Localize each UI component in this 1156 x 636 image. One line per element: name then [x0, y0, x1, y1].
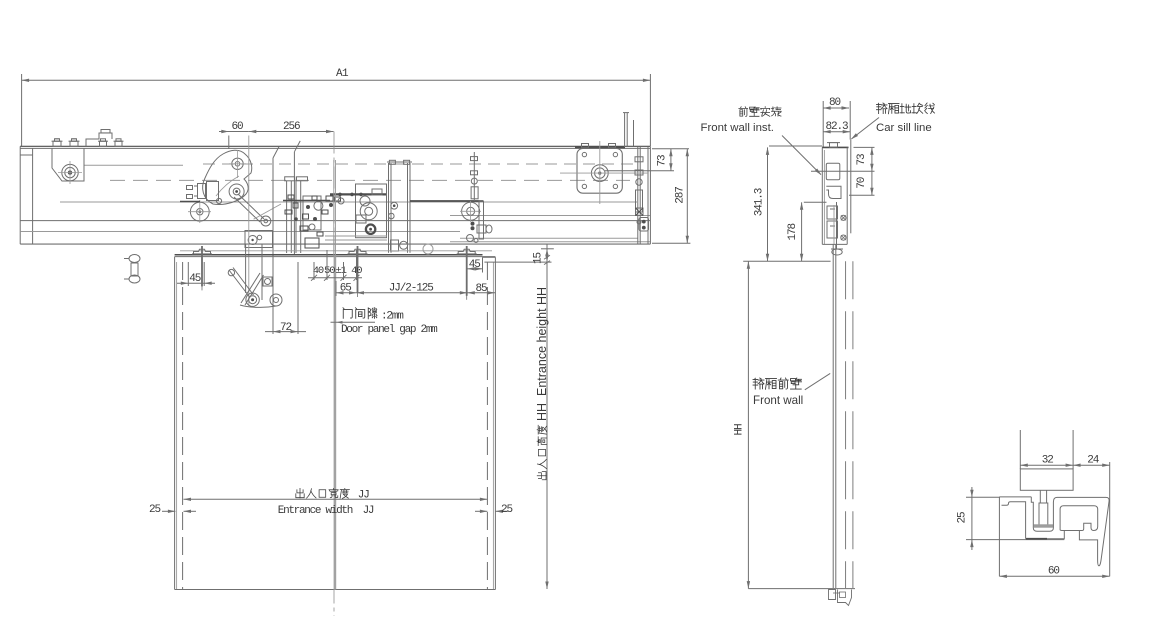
svg-text:A1: A1: [336, 68, 349, 80]
svg-text:72: 72: [280, 322, 292, 334]
svg-text:Entrance width JJ: Entrance width JJ: [278, 505, 374, 517]
svg-text:85: 85: [475, 283, 487, 295]
svg-text:70: 70: [856, 177, 868, 189]
svg-text:45: 45: [469, 259, 481, 271]
svg-text:JJ: JJ: [358, 490, 370, 502]
svg-text:32: 32: [1042, 455, 1054, 467]
svg-text:Car sill line: Car sill line: [876, 122, 932, 134]
svg-text:25: 25: [501, 504, 513, 516]
svg-text:Door panel gap 2mm: Door panel gap 2mm: [341, 324, 438, 336]
svg-text:73: 73: [856, 154, 868, 166]
svg-text:341.3: 341.3: [753, 188, 765, 216]
svg-text:25: 25: [149, 504, 161, 516]
svg-text:82.3: 82.3: [825, 121, 848, 133]
svg-text:±1: ±1: [335, 265, 346, 277]
svg-text:60: 60: [231, 121, 243, 133]
svg-text:256: 256: [283, 121, 300, 133]
svg-text:Front wall: Front wall: [753, 394, 803, 407]
svg-text:60: 60: [1048, 565, 1060, 577]
svg-text:65: 65: [340, 283, 352, 295]
svg-text:73: 73: [657, 155, 669, 167]
svg-text:80: 80: [829, 97, 841, 109]
svg-text:25: 25: [957, 512, 969, 524]
svg-text:24: 24: [1087, 455, 1100, 467]
svg-text:15: 15: [533, 253, 545, 265]
svg-text:287: 287: [675, 187, 687, 204]
svg-text:45: 45: [189, 273, 201, 285]
svg-text::2mm: :2mm: [381, 311, 404, 323]
svg-text:HH: HH: [734, 424, 746, 436]
svg-text:JJ/2-125: JJ/2-125: [389, 283, 434, 295]
svg-text:HH Entrance height HH: HH Entrance height HH: [535, 287, 549, 421]
svg-text:Front wall inst.: Front wall inst.: [701, 122, 774, 134]
svg-text:178: 178: [787, 224, 799, 241]
